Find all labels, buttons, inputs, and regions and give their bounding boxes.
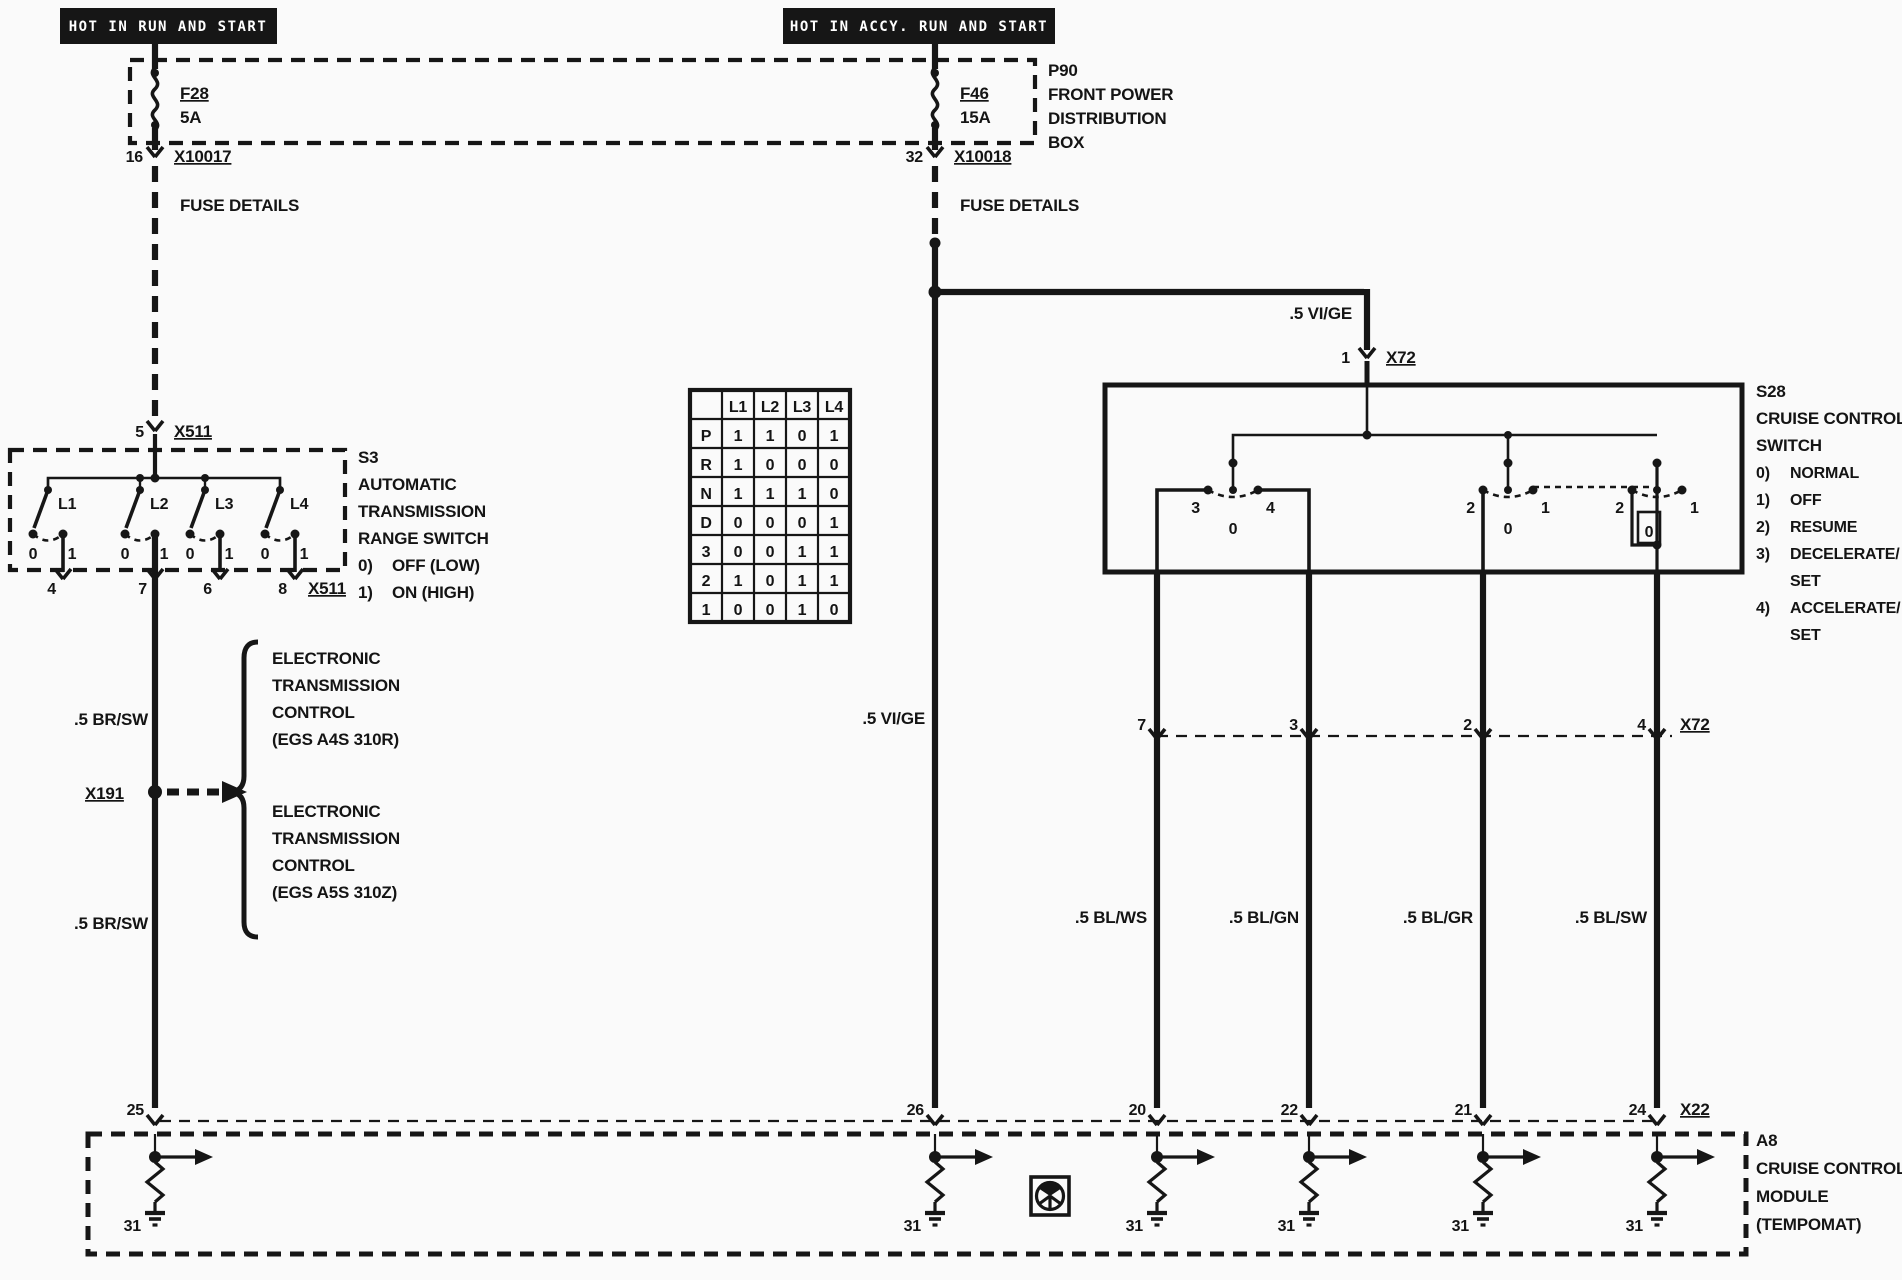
connector-chevron-icon: [1649, 1115, 1665, 1125]
s3-pos1-label: ON (HIGH): [392, 583, 474, 602]
fuse-f46-rating: 15A: [960, 108, 991, 127]
x511-top-pin: 5: [135, 424, 144, 441]
s28-sw2-contact-0: 0: [1504, 521, 1513, 538]
table-cell: 1: [734, 457, 743, 474]
module-input-drop: [145, 1134, 213, 1225]
connector-x10017-label: X10017: [174, 147, 231, 166]
table-cell: 1: [830, 544, 839, 561]
table-row-header: 3: [702, 544, 711, 561]
a8-box: [88, 1134, 1746, 1254]
module-input-drop: [1647, 1134, 1715, 1225]
hot-in-accy-banner: HOT IN ACCY. RUN AND START: [783, 8, 1055, 44]
s28-legend-val: RESUME: [1790, 519, 1858, 536]
br-sw-wire: .5 BR/SW .5 BR/SW X191 ELECTRONIC TRANSM…: [74, 534, 400, 1108]
table-row-header: P: [701, 428, 712, 445]
a8-cruise-control-module: 25 26 20 22 21 24 X22 31 31 31 31 31 31: [88, 1100, 1902, 1254]
table-cell: 1: [798, 602, 807, 619]
s28-name-2: SWITCH: [1756, 436, 1822, 455]
table-cell: 1: [766, 428, 775, 445]
connector-x22-label: X22: [1680, 1100, 1710, 1119]
module-input-drop: [1299, 1134, 1367, 1225]
s3-name-3: RANGE SWITCH: [358, 529, 489, 548]
s28-legend-val: ACCELERATE/: [1790, 600, 1901, 617]
hot-in-run-banner-label: HOT IN RUN AND START: [69, 19, 268, 35]
x511-pin-8: 8: [278, 581, 287, 598]
table-cell: 0: [734, 602, 743, 619]
x72-pin-4: 4: [1637, 717, 1646, 734]
etc2-line-1: ELECTRONIC: [272, 802, 381, 821]
ground-31-label: 31: [1452, 1218, 1470, 1235]
fuse-details-note-right: FUSE DETAILS: [960, 196, 1079, 215]
table-cell: 0: [766, 457, 775, 474]
x511-pin-7: 7: [138, 581, 147, 598]
s3-range-switch: 5 X511 L1 L2 L3 L4 0 1 0 1 0 1 0 1 4 7 6: [10, 421, 489, 602]
ground-31-label: 31: [1626, 1218, 1644, 1235]
s28-legend-key: 2): [1756, 519, 1770, 536]
x22-pin-26: 26: [907, 1102, 925, 1119]
module-input-drop: [1147, 1134, 1215, 1225]
etc2-line-4: (EGS A5S 310Z): [272, 883, 397, 902]
x72-feed-branch: .5 VI/GE 1 X72: [929, 286, 1416, 388]
s28-sw2-contact-2: 2: [1466, 500, 1475, 517]
table-cell: 0: [798, 515, 807, 532]
s28-cruise-control-switch: 3 4 0 2 1 0 2 1 0 S28 CRUISE CONTROL SWI…: [1105, 382, 1902, 644]
table-cell: 1: [798, 544, 807, 561]
table-cell: 0: [766, 544, 775, 561]
wire-label-bl-ws: .5 BL/WS: [1075, 908, 1147, 927]
etc2-line-3: CONTROL: [272, 856, 355, 875]
table-cell: 0: [830, 486, 839, 503]
s3-contact-1: 1: [300, 546, 309, 563]
connector-x511-bottom-label: X511: [308, 579, 346, 598]
ground-31-label: 31: [904, 1218, 922, 1235]
fuse-icon: [152, 68, 157, 130]
s3-contact-0: 0: [261, 546, 270, 563]
p90-name-3: BOX: [1048, 133, 1085, 152]
etc2-line-2: TRANSMISSION: [272, 829, 400, 848]
table-cell: 1: [734, 573, 743, 590]
connector-chevron-icon: [147, 421, 163, 431]
x22-pin-24: 24: [1629, 1102, 1647, 1119]
connector-chevron-icon: [1475, 1115, 1491, 1125]
table-cell: 0: [766, 515, 775, 532]
connector-x511-top-label: X511: [174, 422, 212, 441]
table-col-l3: L3: [793, 399, 812, 416]
table-col-l4: L4: [825, 399, 844, 416]
s28-sw3-contact-2: 2: [1615, 500, 1624, 517]
s3-gate-label-l4: L4: [290, 496, 309, 513]
table-cell: 0: [766, 602, 775, 619]
table-cell: 1: [734, 428, 743, 445]
s28-sw1-contact-0: 0: [1229, 521, 1238, 538]
fuse-details-note-left: FUSE DETAILS: [180, 196, 299, 215]
wire-label-bl-sw: .5 BL/SW: [1575, 908, 1648, 927]
table-row-header: D: [700, 515, 711, 532]
s28-sw2-contact-1: 1: [1541, 500, 1550, 517]
fuse-f46-id: F46: [960, 84, 989, 103]
connector-x10018-label: X10018: [954, 147, 1011, 166]
table-cell: 1: [798, 486, 807, 503]
s3-id: S3: [358, 448, 378, 467]
etc1-line-3: CONTROL: [272, 703, 355, 722]
x10017-pin: 16: [126, 149, 144, 166]
fuse-f46-branch: F46 15A 32 X10018 FUSE DETAILS: [906, 44, 1080, 1108]
s28-legend-val: DECELERATE/: [1790, 546, 1900, 563]
s28-sw3-contact-0: 0: [1645, 524, 1654, 541]
p90-name-1: FRONT POWER: [1048, 85, 1173, 104]
hot-in-run-banner: HOT IN RUN AND START: [60, 8, 277, 44]
s3-pos0-key: 0): [358, 556, 373, 575]
x22-pin-25: 25: [127, 1102, 145, 1119]
table-cell: 0: [734, 544, 743, 561]
a8-name-2: MODULE: [1756, 1187, 1828, 1206]
ground-31-label: 31: [124, 1218, 142, 1235]
a8-id: A8: [1756, 1131, 1777, 1150]
fuse-f28-branch: F28 5A 16 X10017 FUSE DETAILS: [126, 44, 300, 424]
table-col-l2: L2: [761, 399, 780, 416]
fuse-icon: [932, 68, 937, 130]
a8-name-1: CRUISE CONTROL: [1756, 1159, 1902, 1178]
table-cell: 0: [830, 602, 839, 619]
s3-contact-1: 1: [160, 546, 169, 563]
gear-position-truth-table: L1 L2 L3 L4 P 1 1 0 1 R 1 0 0 0 N 1 1 1 …: [690, 390, 850, 622]
table-cell: 0: [766, 573, 775, 590]
fuse-f28-id: F28: [180, 84, 209, 103]
connector-x191-label: X191: [85, 784, 124, 803]
table-col-l1: L1: [729, 399, 748, 416]
x511-pin-6: 6: [203, 581, 212, 598]
table-row-header: R: [700, 457, 712, 474]
connector-x72-label: X72: [1680, 715, 1710, 734]
x10018-pin: 32: [906, 149, 924, 166]
s28-legend-key: 4): [1756, 600, 1770, 617]
x511-pin-4: 4: [47, 581, 56, 598]
s28-legend-key: 3): [1756, 546, 1770, 563]
s3-gate-label-l1: L1: [58, 496, 77, 513]
wire-label-bl-gr: .5 BL/GR: [1403, 908, 1473, 927]
hot-in-accy-banner-label: HOT IN ACCY. RUN AND START: [790, 19, 1048, 35]
p90-name-2: DISTRIBUTION: [1048, 109, 1166, 128]
s3-pos1-key: 1): [358, 583, 373, 602]
cruise-switch-wires: 7 3 2 4 X72 .5 BL/WS .5 BL/GN .5 BL/GR .…: [1075, 572, 1710, 1108]
wire-label-br-sw-upper: .5 BR/SW: [74, 710, 149, 729]
wiring-diagram-canvas: HOT IN RUN AND START HOT IN ACCY. RUN AN…: [0, 0, 1902, 1280]
table-cell: 1: [830, 573, 839, 590]
s28-sw1-contact-4: 4: [1266, 500, 1275, 517]
table-cell: 0: [830, 457, 839, 474]
brace-icon: [232, 642, 258, 937]
module-input-drop: [1473, 1134, 1541, 1225]
x72-pin-2: 2: [1463, 717, 1472, 734]
s28-sw1-contact-3: 3: [1191, 500, 1200, 517]
x72-pin-3: 3: [1289, 717, 1298, 734]
s3-contact-0: 0: [121, 546, 130, 563]
etc1-line-4: (EGS A4S 310R): [272, 730, 399, 749]
s3-contact-0: 0: [186, 546, 195, 563]
connector-x72-label-top: X72: [1386, 348, 1416, 367]
fuse-f28-rating: 5A: [180, 108, 201, 127]
etc1-line-1: ELECTRONIC: [272, 649, 381, 668]
module-input-drop: [925, 1134, 993, 1225]
x22-pin-21: 21: [1455, 1102, 1473, 1119]
table-cell: 0: [798, 457, 807, 474]
s3-contact-0: 0: [29, 546, 38, 563]
a8-name-3: (TEMPOMAT): [1756, 1215, 1861, 1234]
etc1-line-2: TRANSMISSION: [272, 676, 400, 695]
s3-contact-1: 1: [225, 546, 234, 563]
s28-legend-val: OFF: [1790, 492, 1822, 509]
table-cell: 0: [798, 428, 807, 445]
table-cell: 1: [798, 573, 807, 590]
table-row-header: 2: [702, 573, 711, 590]
x72-pin-7: 7: [1137, 717, 1146, 734]
s28-legend-val: NORMAL: [1790, 465, 1859, 482]
s3-name-2: TRANSMISSION: [358, 502, 486, 521]
s28-name-1: CRUISE CONTROL: [1756, 409, 1902, 428]
connector-chevron-icon: [927, 1115, 943, 1125]
x72-pin-1: 1: [1341, 350, 1350, 367]
s3-contact-1: 1: [68, 546, 77, 563]
wire-label-bl-gn: .5 BL/GN: [1229, 908, 1299, 927]
s28-legend-val: SET: [1790, 573, 1821, 590]
p90-power-distribution-box: P90 FRONT POWER DISTRIBUTION BOX: [130, 60, 1173, 152]
table-cell: 1: [766, 486, 775, 503]
s28-legend-val: SET: [1790, 627, 1821, 644]
schematic-svg: HOT IN RUN AND START HOT IN ACCY. RUN AN…: [0, 0, 1902, 1280]
table-cell: 0: [734, 515, 743, 532]
s3-pos0-label: OFF (LOW): [392, 556, 480, 575]
table-row-header: N: [700, 486, 711, 503]
table-cell: 1: [830, 515, 839, 532]
wire-label-br-sw-lower: .5 BR/SW: [74, 914, 149, 933]
steering-wheel-icon: [1031, 1177, 1069, 1215]
x22-pin-22: 22: [1281, 1102, 1299, 1119]
s3-name-1: AUTOMATIC: [358, 475, 457, 494]
connector-chevron-icon: [147, 1115, 163, 1125]
table-cell: 1: [734, 486, 743, 503]
s28-id: S28: [1756, 382, 1786, 401]
x22-pin-20: 20: [1129, 1102, 1147, 1119]
ground-31-label: 31: [1126, 1218, 1144, 1235]
ground-31-label: 31: [1278, 1218, 1296, 1235]
s3-gate-label-l2: L2: [150, 496, 169, 513]
table-cell: 1: [830, 428, 839, 445]
s28-legend-key: 0): [1756, 465, 1770, 482]
table-row-header: 1: [702, 602, 711, 619]
s28-sw3-contact-1: 1: [1690, 500, 1699, 517]
s3-gate-label-l3: L3: [215, 496, 234, 513]
wire-label-vi-ge-mid: .5 VI/GE: [862, 709, 925, 728]
wire-label-vi-ge-top: .5 VI/GE: [1289, 304, 1352, 323]
p90-id: P90: [1048, 61, 1078, 80]
s28-legend-key: 1): [1756, 492, 1770, 509]
